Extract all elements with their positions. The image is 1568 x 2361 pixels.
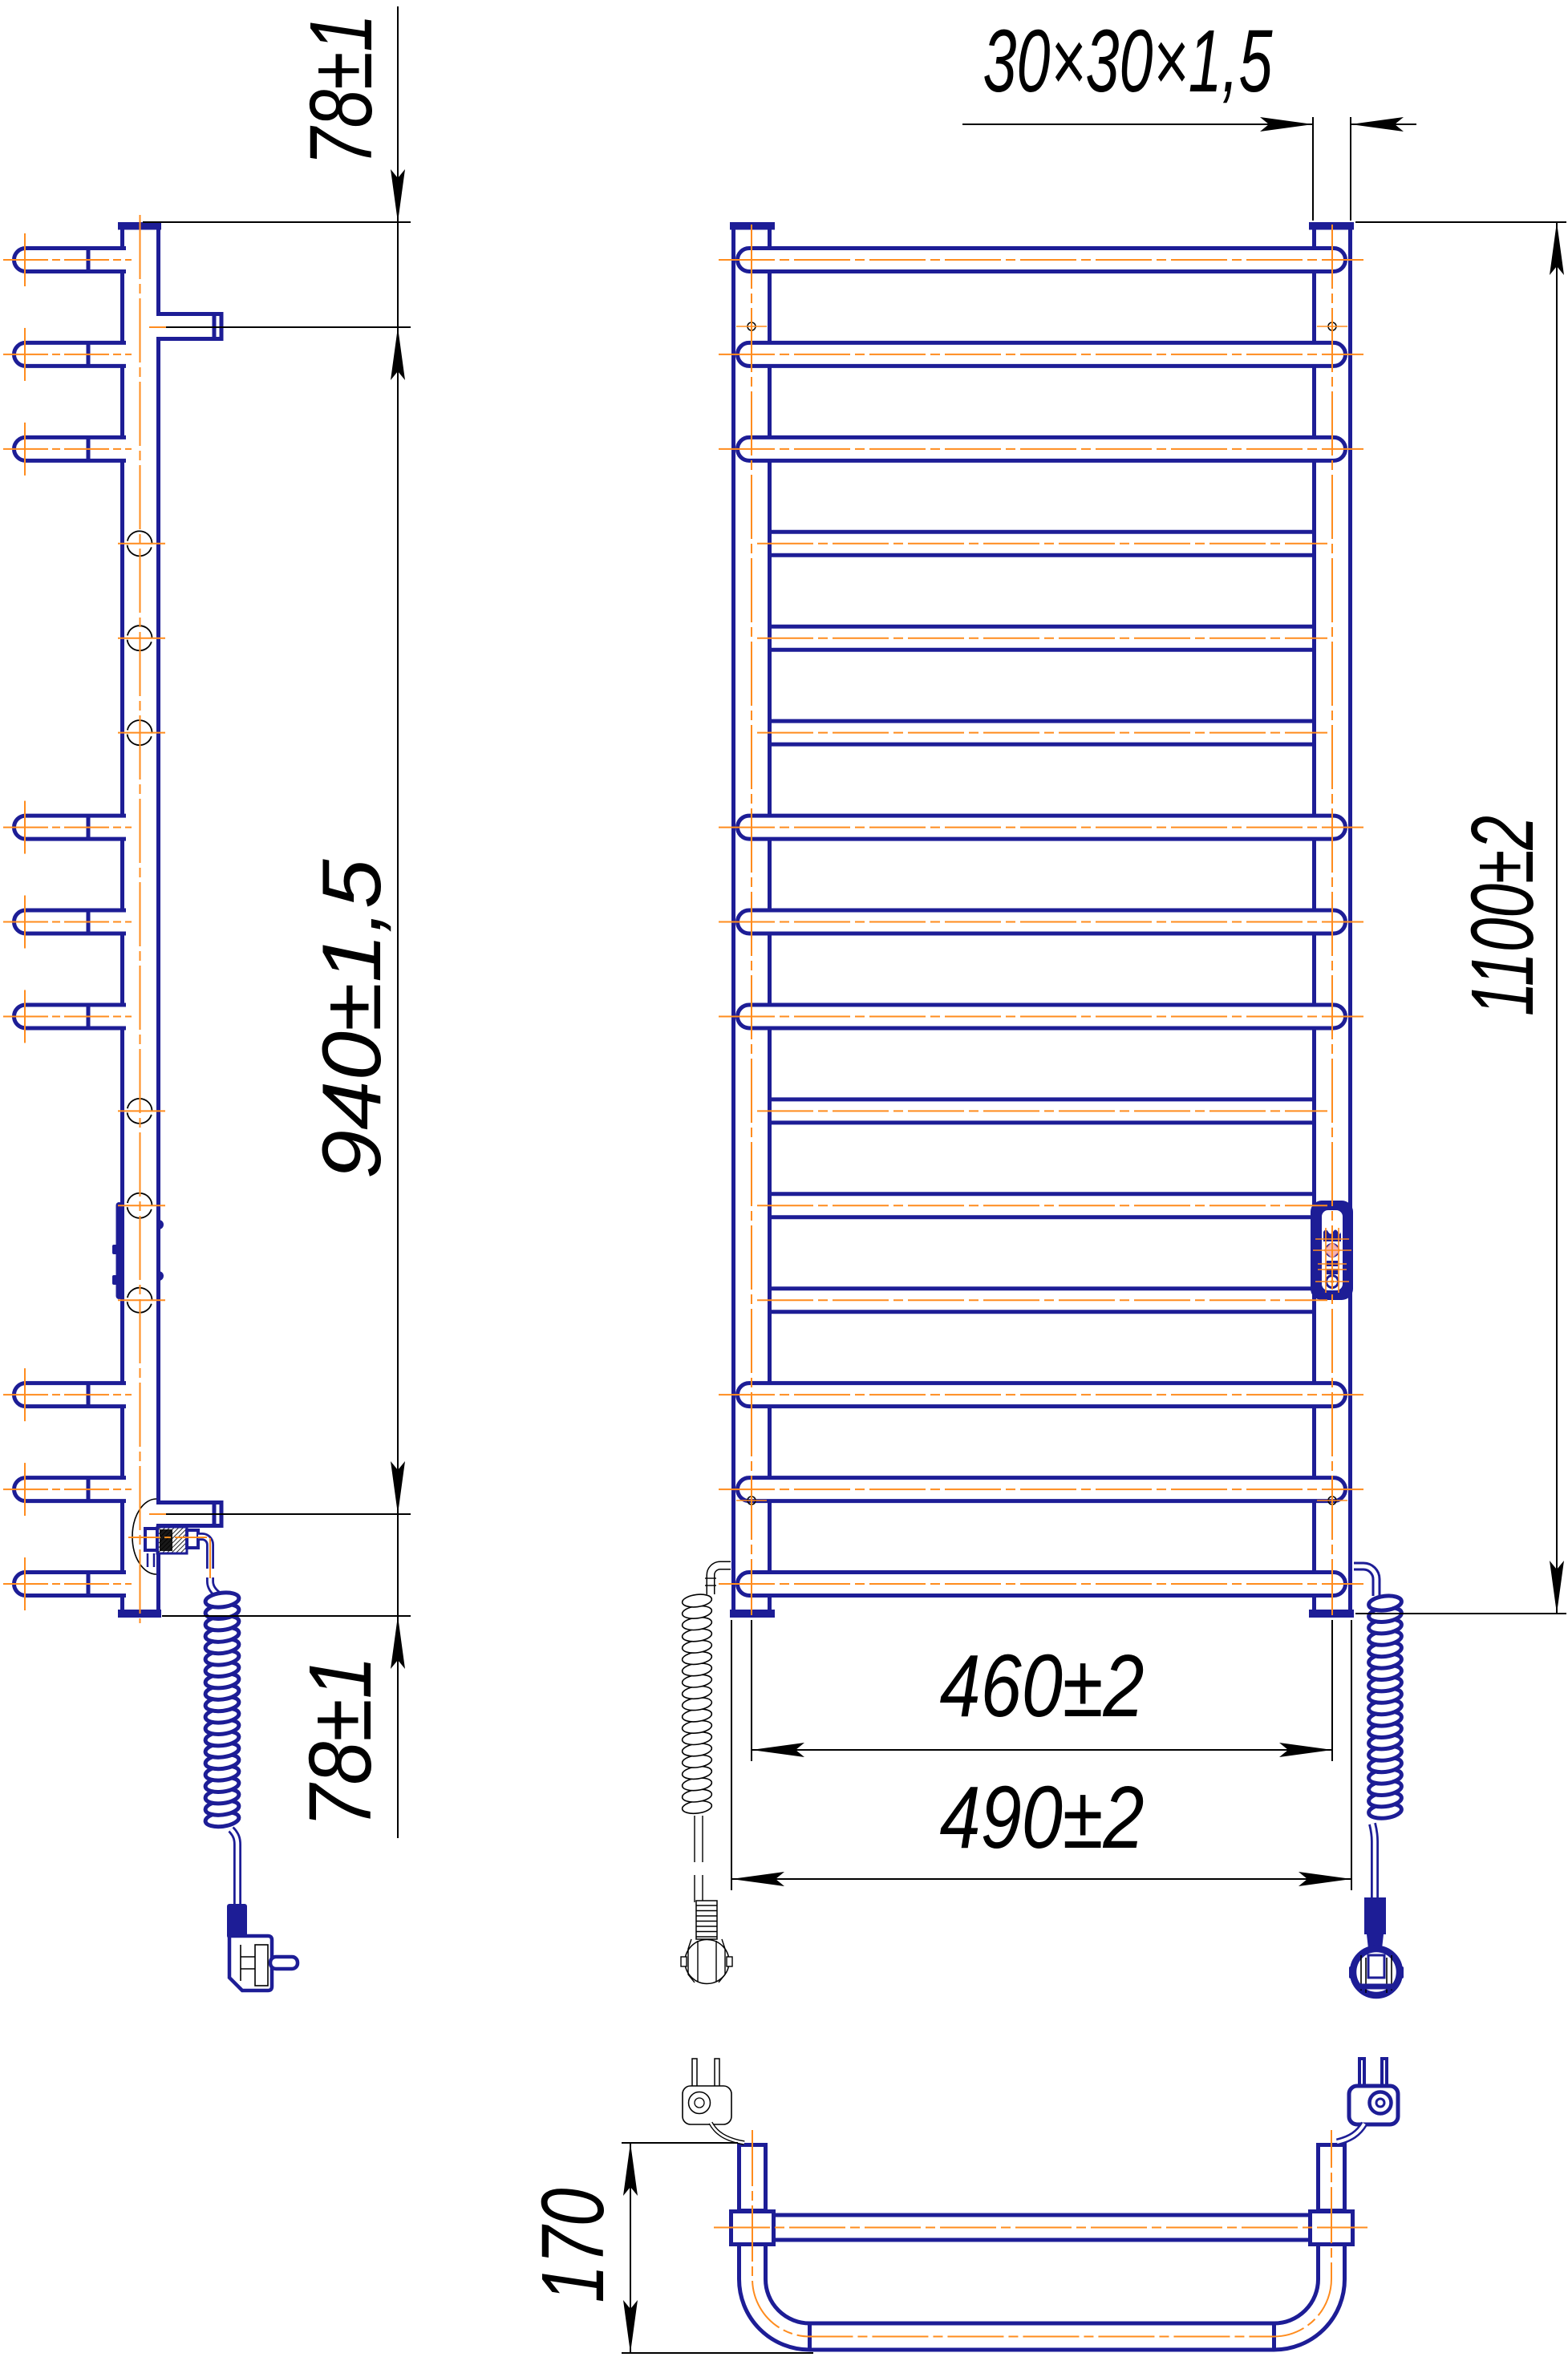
svg-text:490±2: 490±2 <box>940 1768 1145 1867</box>
svg-text:940±1,5: 940±1,5 <box>306 858 399 1179</box>
svg-text:170: 170 <box>524 2189 622 2303</box>
svg-text:78±1: 78±1 <box>291 1656 390 1828</box>
svg-text:30×30×1,5: 30×30×1,5 <box>983 12 1274 111</box>
svg-text:1100±2: 1100±2 <box>1453 816 1552 1016</box>
svg-text:460±2: 460±2 <box>940 1637 1145 1735</box>
svg-text:78±1: 78±1 <box>292 14 391 166</box>
